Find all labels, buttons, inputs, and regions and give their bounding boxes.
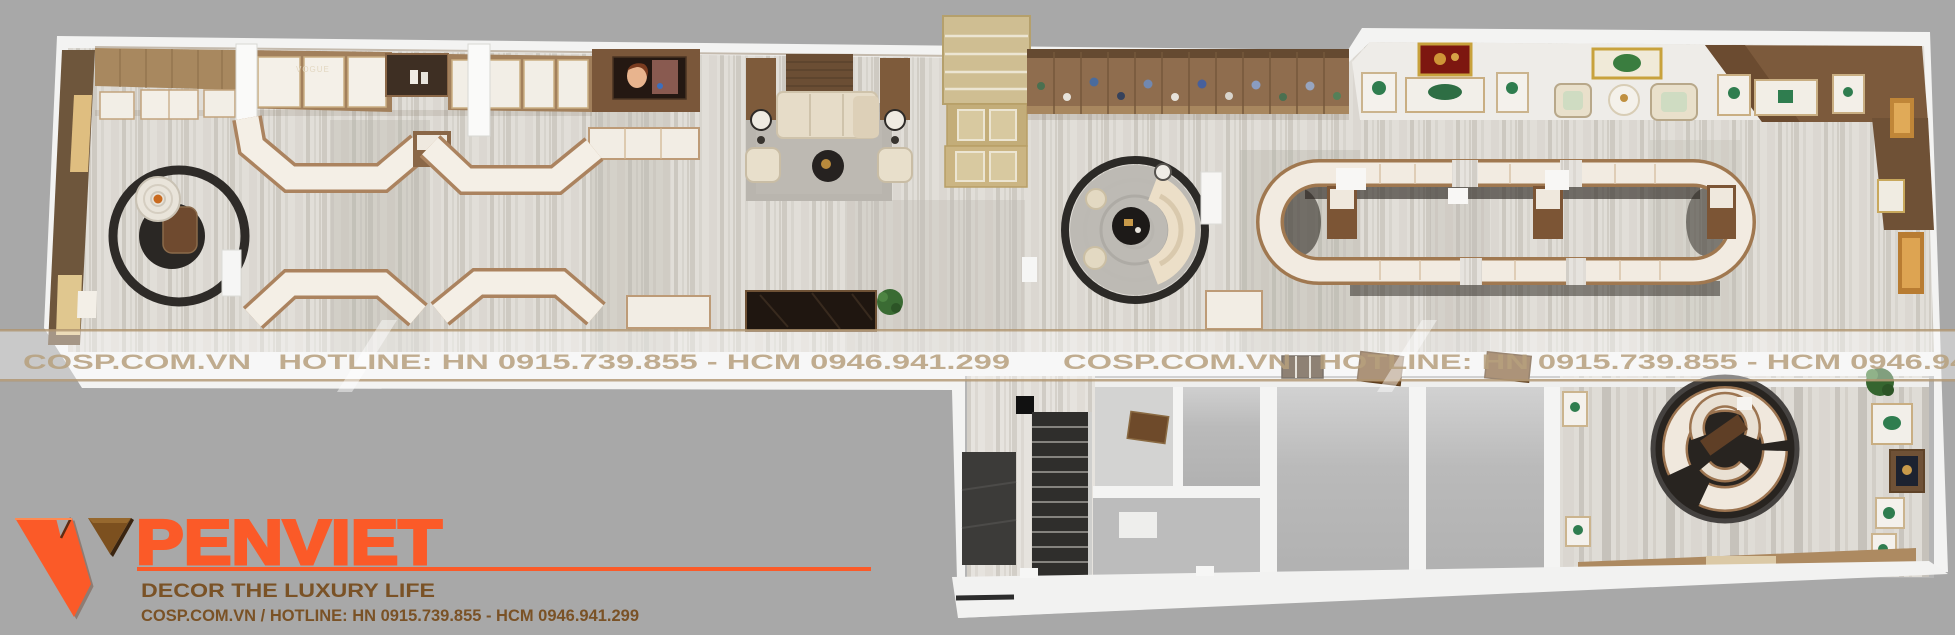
svg-text:COSP.COM.VN / HOTLINE: HN 0915: COSP.COM.VN / HOTLINE: HN 0915.739.855 -…	[141, 606, 639, 625]
svg-text:VOGUE: VOGUE	[296, 65, 330, 74]
svg-text:COSP.COM.VN HOTLINE: HN 0915: COSP.COM.VN HOTLINE: HN 0915.739.855 - H…	[1063, 351, 1955, 374]
svg-text:COSP.COM.VN HOTLINE: HN 0915: COSP.COM.VN HOTLINE: HN 0915.739.855 - H…	[23, 351, 1010, 374]
svg-text:DECOR THE LUXURY LIFE: DECOR THE LUXURY LIFE	[141, 581, 435, 602]
